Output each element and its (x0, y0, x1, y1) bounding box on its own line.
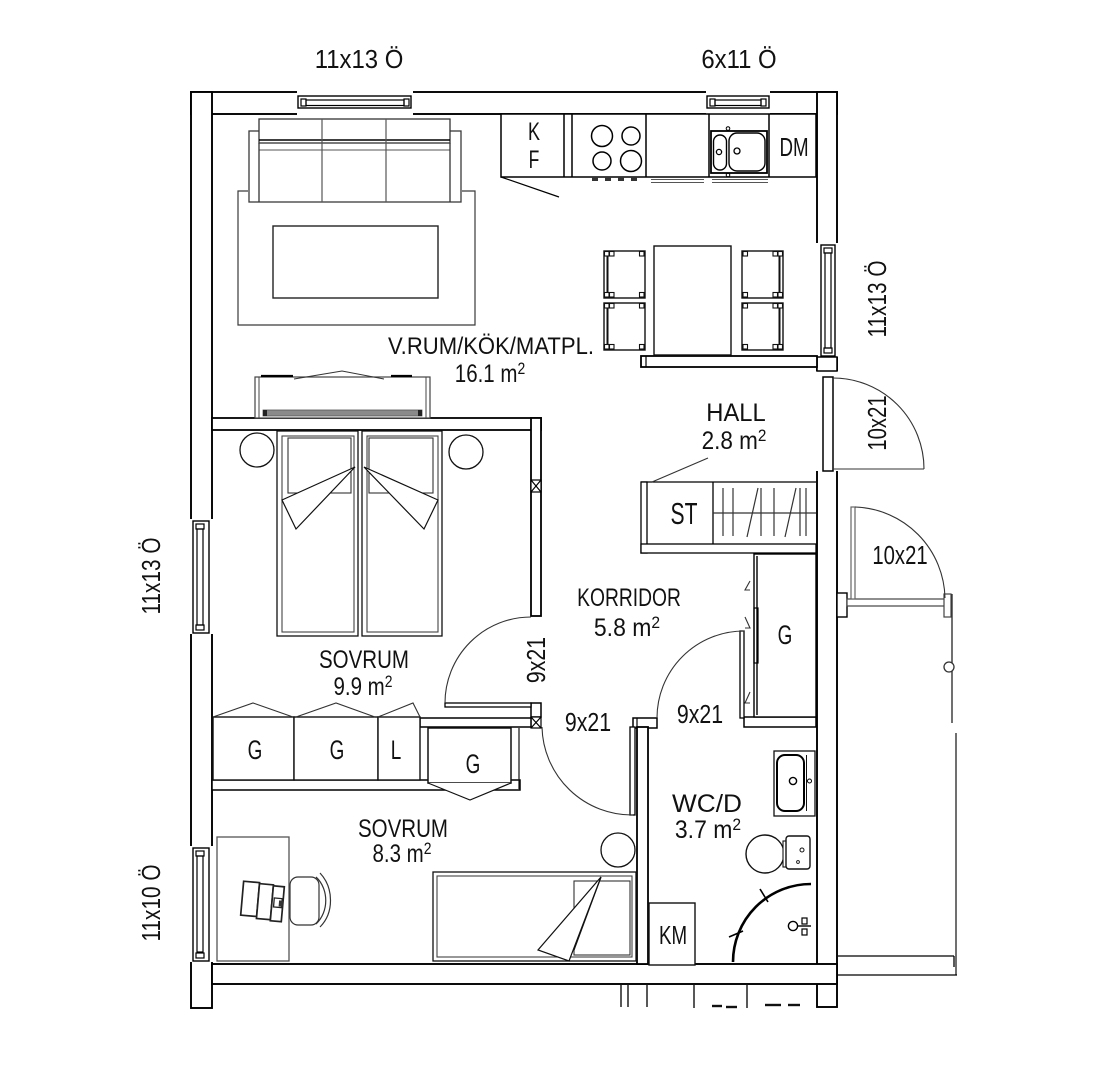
svg-text:K: K (528, 117, 540, 146)
svg-text:8.3 m2: 8.3 m2 (372, 839, 431, 867)
svg-text:KORRIDOR: KORRIDOR (577, 584, 681, 612)
svg-text:16.1 m2: 16.1 m2 (455, 359, 525, 387)
svg-text:SOVRUM: SOVRUM (319, 645, 409, 673)
svg-text:F: F (529, 145, 540, 174)
svg-text:6x11 Ö: 6x11 Ö (701, 45, 776, 74)
svg-text:5.8 m2: 5.8 m2 (594, 613, 660, 642)
svg-text:WC/D: WC/D (672, 791, 742, 818)
svg-text:9x21: 9x21 (565, 708, 611, 738)
svg-text:ST: ST (671, 496, 698, 531)
svg-text:9x21: 9x21 (677, 700, 723, 730)
svg-text:G: G (330, 735, 345, 765)
svg-text:10x21: 10x21 (872, 541, 927, 570)
svg-text:9x21: 9x21 (522, 637, 552, 683)
svg-text:HALL: HALL (706, 399, 765, 427)
svg-text:V.RUM/KÖK/MATPL.: V.RUM/KÖK/MATPL. (388, 332, 594, 359)
svg-text:G: G (248, 735, 263, 765)
svg-text:KM: KM (659, 920, 687, 950)
svg-text:DM: DM (779, 132, 808, 162)
svg-text:9.9 m2: 9.9 m2 (333, 672, 392, 700)
svg-text:11x13 Ö: 11x13 Ö (315, 45, 404, 74)
svg-text:G: G (778, 620, 793, 650)
svg-text:11x10 Ö: 11x10 Ö (137, 864, 166, 941)
svg-text:L: L (391, 735, 402, 765)
svg-text:G: G (466, 749, 481, 779)
svg-text:10x21: 10x21 (863, 395, 892, 450)
svg-text:2.8 m2: 2.8 m2 (702, 426, 767, 455)
svg-text:11x13 Ö: 11x13 Ö (137, 537, 166, 614)
svg-text:3.7 m2: 3.7 m2 (675, 815, 741, 844)
svg-text:11x13 Ö: 11x13 Ö (863, 260, 892, 337)
